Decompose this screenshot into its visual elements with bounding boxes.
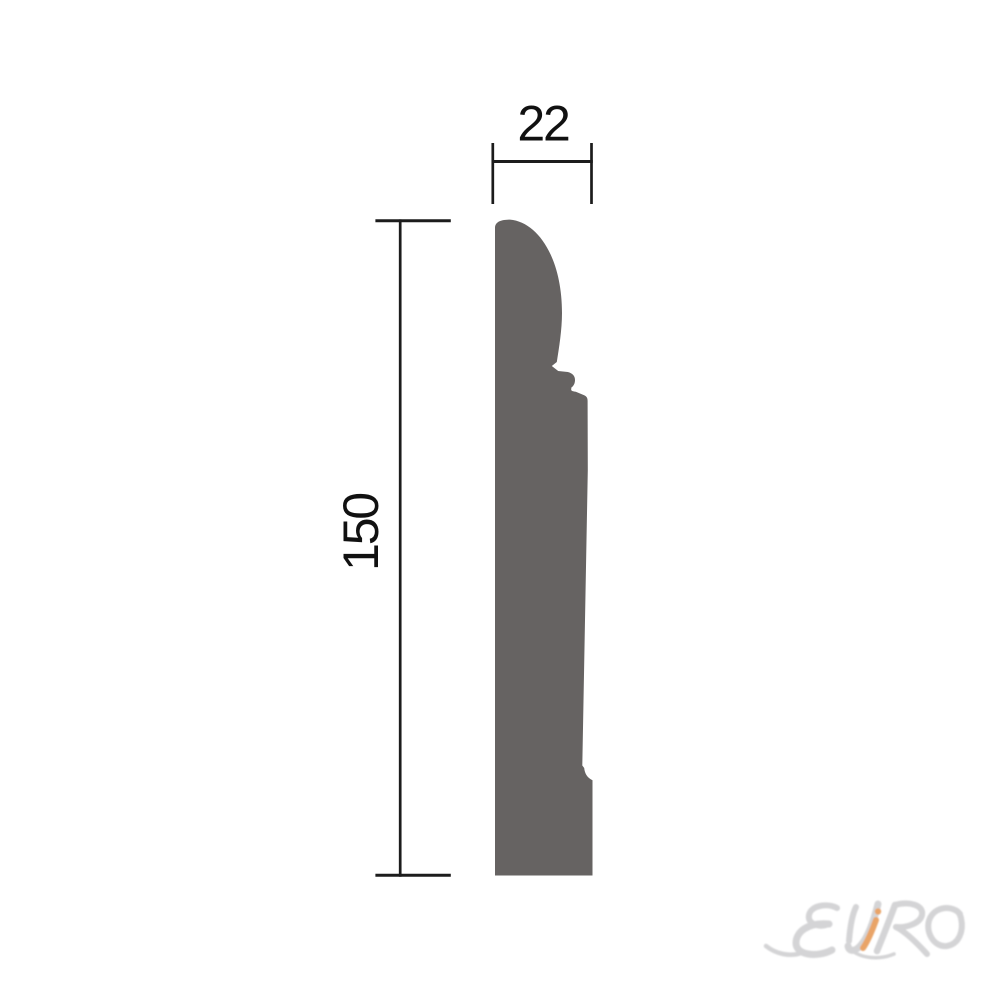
svg-text:22: 22 xyxy=(517,96,569,152)
svg-text:150: 150 xyxy=(333,494,389,571)
